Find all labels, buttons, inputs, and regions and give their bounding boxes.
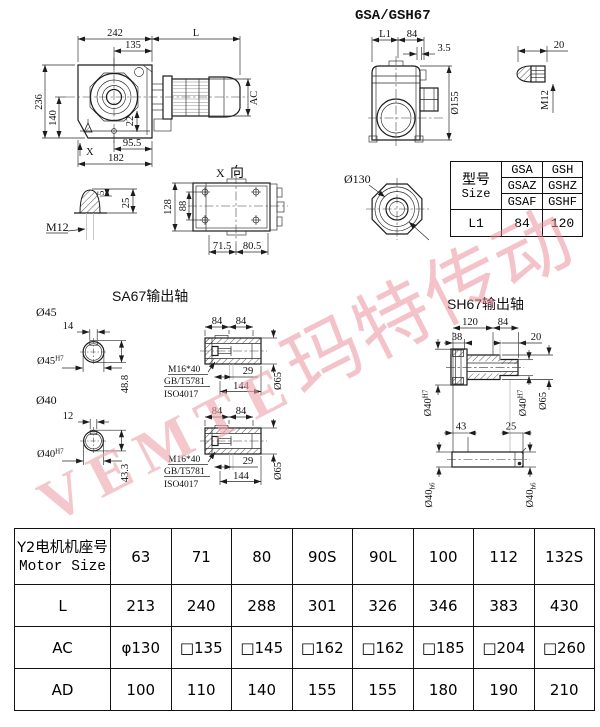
- AD-value: 190: [474, 669, 535, 711]
- drawing-canvas: 242 L 135 236 140 22 X 95.5 182 AC GSA/G…: [0, 0, 600, 525]
- L-value: 383: [474, 585, 535, 627]
- dim-242: 242: [107, 28, 123, 39]
- AC-value: □260: [534, 627, 595, 669]
- L-value: 346: [413, 585, 474, 627]
- hollow-shaft-section-1: 84 84 M16*40 GB/T5781 ISO4017 29 144 Ø65: [164, 316, 284, 400]
- x-view-label-dir: 向: [230, 164, 244, 180]
- motor-size-col: 90S: [292, 529, 353, 585]
- dim-25: 25: [121, 198, 132, 209]
- dim-43-3: 43.3: [120, 464, 131, 482]
- key-detail: 20 M12: [517, 40, 568, 113]
- dim-12: 12: [63, 411, 74, 422]
- L-value: 301: [292, 585, 353, 627]
- dim-M12-key: M12: [540, 90, 551, 110]
- dim-43: 43: [456, 422, 467, 433]
- size-cell: GSAF: [502, 194, 543, 210]
- bolt-label-s1: M16*40: [168, 365, 200, 375]
- dim-29-s2: 29: [243, 456, 254, 467]
- dim-84-side: 84: [407, 29, 418, 40]
- size-cell: GSH: [543, 162, 583, 178]
- dim-140: 140: [48, 110, 59, 126]
- dim-L1: L1: [379, 29, 391, 40]
- dim-shaft-right: Ø40h6: [525, 482, 538, 508]
- std2-s2: ISO4017: [164, 480, 199, 490]
- std1-s1: GB/T5781: [164, 377, 205, 387]
- dim-88: 88: [178, 201, 189, 212]
- sh67-title: SH67输出轴: [447, 296, 524, 312]
- motor-table-header-en: Motor Size: [15, 558, 110, 576]
- dim-29-s1: 29: [243, 366, 254, 377]
- dim-65-s2: Ø65: [273, 462, 284, 480]
- std2-s1: ISO4017: [164, 390, 199, 400]
- dim-95-5: 95.5: [123, 138, 141, 149]
- sh67-section: SH67输出轴 120 84 38 20 Ø40H: [422, 296, 554, 508]
- motor-size-col: 71: [171, 529, 232, 585]
- label-d45: Ø45: [36, 305, 57, 319]
- dim-84-sh: 84: [498, 317, 509, 328]
- dim-X-arrow: X: [86, 147, 94, 158]
- size-cell: GSA: [502, 162, 543, 178]
- dim-84b-s2: 84: [236, 406, 247, 417]
- dim-128: 128: [163, 199, 174, 215]
- row-label-AC: AC: [15, 627, 111, 669]
- AD-value: 100: [111, 669, 172, 711]
- label-M12-plug: M12: [46, 220, 69, 234]
- dim-20-key: 20: [554, 40, 565, 51]
- l1-value: 84: [502, 210, 543, 237]
- dim-71-5: 71.5: [213, 241, 231, 252]
- main-view: 242 L 135 236 140 22 X 95.5 182 AC: [34, 28, 260, 167]
- AC-value: □135: [171, 627, 232, 669]
- L-value: 326: [353, 585, 414, 627]
- dim-135: 135: [125, 40, 141, 51]
- l1-label: L1: [451, 210, 502, 237]
- sa67-title: SA67输出轴: [112, 288, 188, 304]
- motor-table-header: Y2电机机座号 Motor Size: [15, 529, 111, 585]
- dim-155: Ø155: [450, 91, 461, 114]
- dim-5: 5: [97, 190, 107, 195]
- label-d40: Ø40: [36, 393, 57, 407]
- dim-84a-s1: 84: [212, 316, 223, 327]
- motor-size-col: 80: [232, 529, 293, 585]
- AD-value: 110: [171, 669, 232, 711]
- octagon-view: Ø130: [344, 172, 429, 240]
- size-table: 型号 Size GSA GSH GSAZ GSHZ GSAF GSHF L1 8…: [450, 161, 583, 237]
- dim-14: 14: [63, 321, 74, 332]
- AD-value: 155: [292, 669, 353, 711]
- bore-45-detail: 14 Ø45H7 48.8: [37, 321, 131, 393]
- dim-48-8: 48.8: [120, 375, 131, 393]
- sa67-section: SA67输出轴 Ø45 14 Ø45H7 48.8 Ø40: [36, 288, 284, 490]
- dim-20-sh: 20: [531, 332, 542, 343]
- dim-3-5: 3.5: [437, 43, 450, 54]
- dim-bore-40: Ø40H7: [37, 448, 64, 461]
- dim-38: 38: [452, 332, 463, 343]
- motor-size-col: 100: [413, 529, 474, 585]
- dim-84a-s2: 84: [212, 406, 223, 417]
- AC-value: φ130: [111, 627, 172, 669]
- gearbox-drawing-page: 242 L 135 236 140 22 X 95.5 182 AC GSA/G…: [0, 0, 600, 727]
- bore-40-detail: 12 Ø40H7 43.3: [37, 411, 131, 482]
- row-label-L: L: [15, 585, 111, 627]
- dim-shaft-left: Ø40h6: [424, 482, 437, 508]
- dim-L: L: [193, 28, 199, 39]
- side-view-title: GSA/GSH67: [355, 8, 431, 24]
- AC-value: □185: [413, 627, 474, 669]
- dim-65-sh: Ø65: [538, 392, 549, 410]
- motor-size-col: 132S: [534, 529, 595, 585]
- motor-size-col: 112: [474, 529, 535, 585]
- dim-144-s2: 144: [233, 471, 250, 482]
- hollow-shaft-section-2: 84 84 M16*40 GB/T5781 ISO4017 29 144 Ø65: [164, 406, 284, 490]
- AC-value: □162: [292, 627, 353, 669]
- dim-120: 120: [462, 317, 478, 328]
- dim-80-5: 80.5: [243, 241, 261, 252]
- dim-84b-s1: 84: [236, 316, 247, 327]
- motor-table: Y2电机机座号 Motor Size 63 71 80 90S 90L 100 …: [14, 528, 595, 711]
- size-cell: GSAZ: [502, 178, 543, 194]
- bolt-label-s2: M16*40: [168, 455, 200, 465]
- size-table-header-cn: 型号: [451, 171, 501, 188]
- size-table-header: 型号 Size: [451, 162, 502, 210]
- x-view-label-x: X: [216, 166, 225, 180]
- side-view: GSA/GSH67 L1 84 3.5 Ø155: [355, 8, 461, 146]
- L-value: 240: [171, 585, 232, 627]
- AD-value: 210: [534, 669, 595, 711]
- dim-236: 236: [34, 94, 45, 110]
- L-value: 213: [111, 585, 172, 627]
- dim-130: Ø130: [344, 172, 371, 186]
- dim-182: 182: [108, 153, 124, 164]
- dim-AC: AC: [249, 91, 260, 106]
- dim-144-s1: 144: [233, 381, 250, 392]
- plug-detail: 5 25 M12: [46, 189, 137, 240]
- AC-value: □162: [353, 627, 414, 669]
- size-cell: GSHF: [543, 194, 583, 210]
- l1-value: 120: [543, 210, 583, 237]
- dim-bore-left: Ø40H7: [422, 389, 435, 416]
- motor-size-col: 90L: [353, 529, 414, 585]
- size-table-header-en: Size: [451, 188, 501, 201]
- dim-bore-right: Ø40H7: [517, 389, 530, 416]
- x-view: X 向 128 88 71.5 80.5: [163, 164, 288, 255]
- motor-table-header-cn: Y2电机机座号: [15, 538, 110, 558]
- row-label-AD: AD: [15, 669, 111, 711]
- L-value: 430: [534, 585, 595, 627]
- dim-bore-45: Ø45H7: [37, 355, 64, 368]
- motor-size-col: 63: [111, 529, 172, 585]
- AC-value: □145: [232, 627, 293, 669]
- dim-22: 22: [125, 116, 136, 127]
- dim-65-s1: Ø65: [273, 372, 284, 390]
- L-value: 288: [232, 585, 293, 627]
- AD-value: 140: [232, 669, 293, 711]
- AD-value: 155: [353, 669, 414, 711]
- size-cell: GSHZ: [543, 178, 583, 194]
- AD-value: 180: [413, 669, 474, 711]
- dim-25-sh: 25: [506, 422, 517, 433]
- std1-s2: GB/T5781: [164, 467, 205, 477]
- AC-value: □204: [474, 627, 535, 669]
